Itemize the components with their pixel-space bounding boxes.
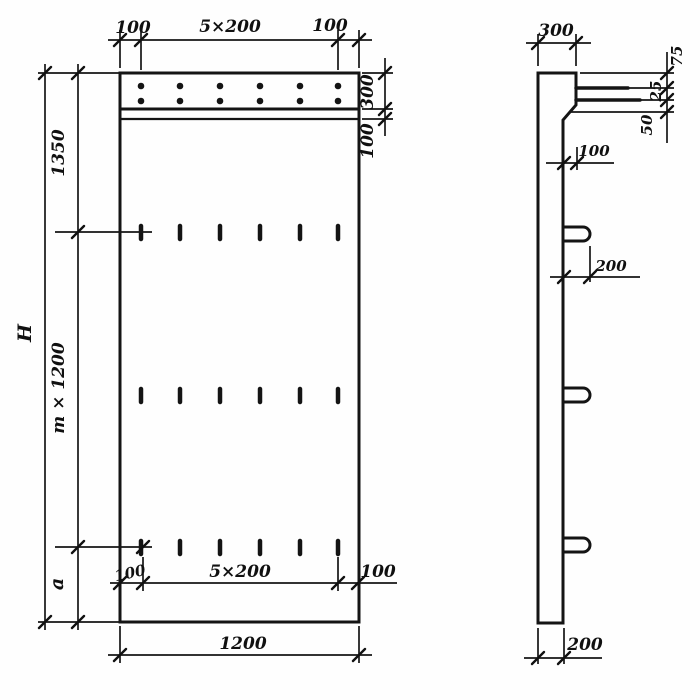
panel-outline	[120, 73, 359, 622]
anchor-dots	[138, 83, 342, 105]
dim-label-side-top-width: 300	[538, 21, 574, 41]
lifting-hook-3	[564, 538, 590, 552]
dim-label-side-50: 50	[638, 114, 656, 135]
dim-side-top: 300	[526, 21, 591, 66]
dim-label-band-height: 300	[358, 74, 378, 110]
dim-label-strip-height: 100	[358, 123, 378, 159]
dim-label-left-top: 1350	[49, 129, 69, 176]
dim-side-ledge: 100	[546, 142, 614, 170]
slot-marks-row-2	[141, 389, 338, 402]
protruding-bars	[576, 88, 640, 100]
dim-label-overall-height: H	[14, 323, 36, 343]
dim-bottom-overall: 1200	[108, 626, 372, 663]
dim-side-bottom: 200	[524, 628, 603, 664]
dim-label-side-75: 75	[668, 46, 686, 67]
dim-top-chain: 100 5×200 100	[108, 16, 372, 70]
dim-label-top-right: 100	[312, 16, 348, 36]
dim-label-left-middle: m × 1200	[49, 342, 69, 434]
dim-right-chain: 300 100	[358, 58, 393, 159]
technical-drawing-sheet: 100 5×200 100 300 100 H 1350 m × 1200 a	[0, 0, 700, 700]
dim-label-side-thickness: 200	[566, 635, 603, 655]
profile-outline	[538, 73, 576, 623]
front-view: 100 5×200 100 300 100 H 1350 m × 1200 a	[14, 16, 397, 663]
panel-drawing: 100 5×200 100 300 100 H 1350 m × 1200 a	[0, 0, 700, 700]
dim-label-ledge-offset: 100	[578, 142, 610, 160]
lifting-hook-1	[564, 227, 590, 241]
dim-side-right-chain: 75 25 50	[570, 46, 686, 143]
dim-label-left-bottom: a	[46, 578, 68, 590]
slot-marks-row-3	[141, 541, 338, 554]
dim-label-top-span: 5×200	[199, 17, 261, 37]
dim-left-chain-ticks	[72, 67, 149, 628]
slot-marks-row-1	[141, 226, 338, 239]
dim-inner-bottom-chain: 100 5×200 100	[110, 557, 397, 591]
dim-left-chains: H 1350 m × 1200 a	[14, 64, 152, 630]
dim-label-overall-width: 1200	[219, 634, 266, 654]
dim-label-inner-bottom-right: 100	[360, 562, 396, 582]
dim-label-top-left: 100	[115, 18, 151, 38]
lifting-hook-2	[564, 388, 590, 402]
dim-label-hook-length: 200	[594, 257, 627, 275]
side-view: 300 75 25 50 100 200	[524, 21, 686, 664]
dim-label-side-25: 25	[647, 81, 665, 103]
dim-label-inner-bottom-span: 5×200	[209, 562, 271, 582]
